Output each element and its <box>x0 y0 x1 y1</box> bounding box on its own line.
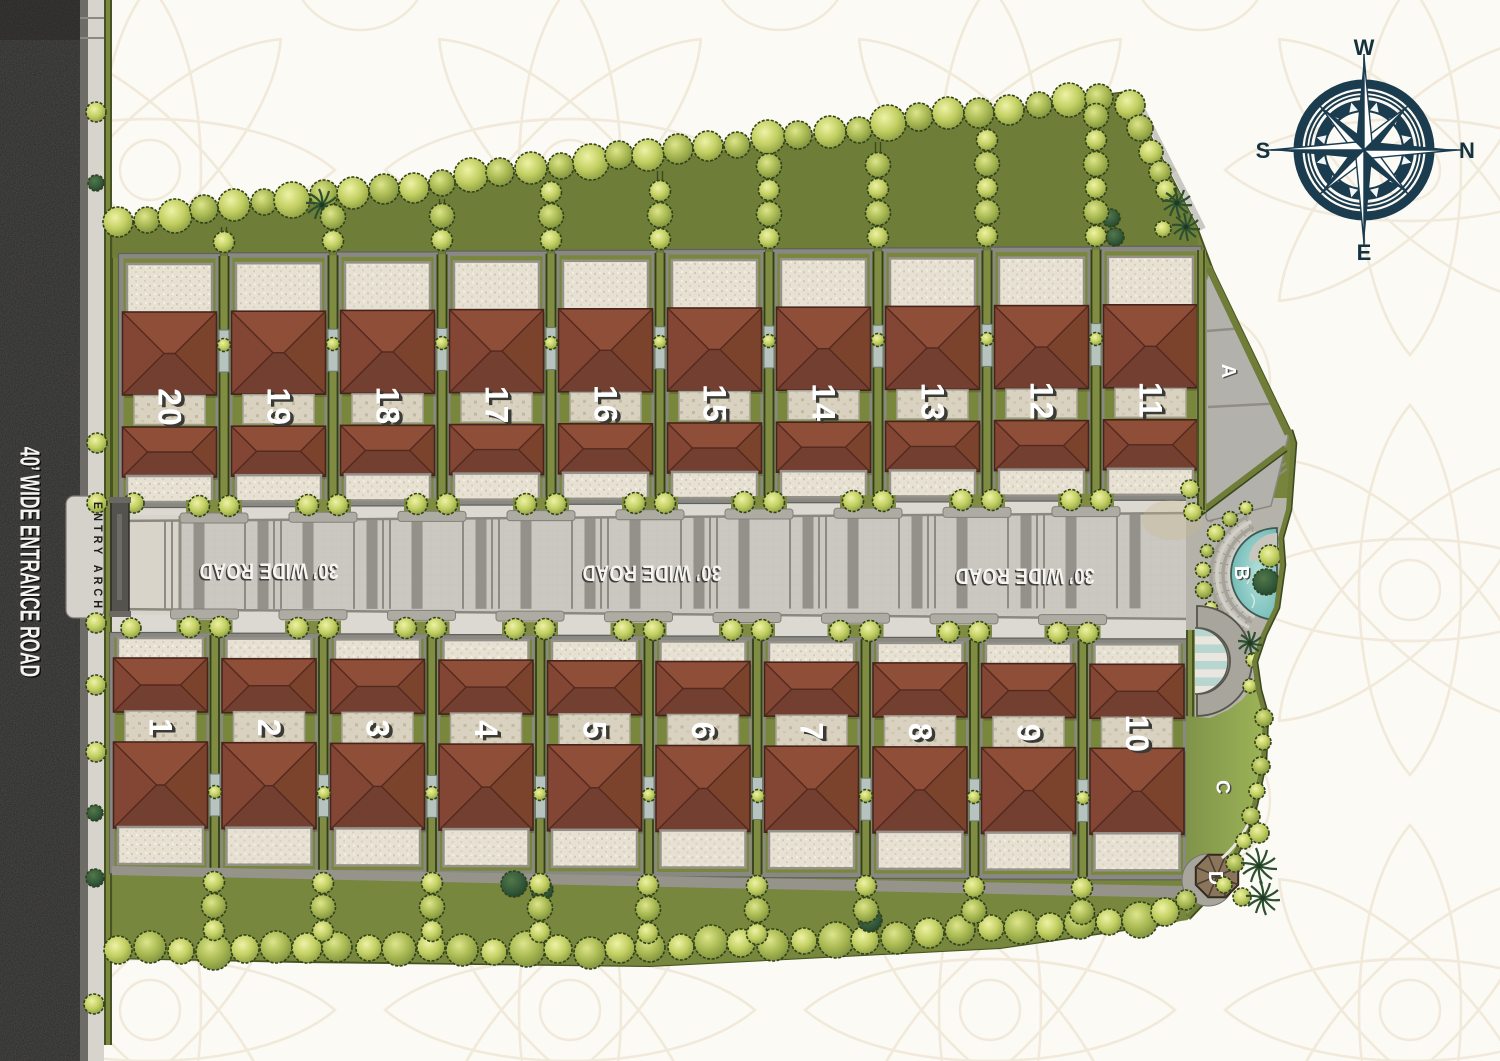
svg-text:4: 4 <box>468 720 504 740</box>
svg-text:2: 2 <box>251 719 287 739</box>
svg-text:30’ WIDE ROAD: 30’ WIDE ROAD <box>955 563 1095 587</box>
svg-text:12: 12 <box>1024 382 1060 422</box>
svg-text:W: W <box>1354 35 1375 60</box>
svg-text:16: 16 <box>588 385 624 425</box>
svg-text:S: S <box>1256 138 1271 163</box>
svg-text:3: 3 <box>360 720 396 740</box>
svg-text:8: 8 <box>902 723 938 743</box>
svg-text:N: N <box>1459 138 1475 163</box>
svg-text:11: 11 <box>1133 382 1169 420</box>
svg-text:C: C <box>1212 780 1233 794</box>
svg-text:13: 13 <box>915 383 951 423</box>
svg-text:19: 19 <box>261 387 297 427</box>
svg-text:6: 6 <box>685 722 721 742</box>
svg-text:A: A <box>1217 364 1239 378</box>
svg-text:E: E <box>1357 240 1372 265</box>
svg-text:1: 1 <box>143 718 179 738</box>
svg-text:18: 18 <box>370 387 406 427</box>
svg-text:14: 14 <box>806 383 842 423</box>
svg-text:40’ WIDE ENTRANCE ROAD: 40’ WIDE ENTRANCE ROAD <box>14 447 45 677</box>
svg-text:30’ WIDE ROAD: 30’ WIDE ROAD <box>582 560 722 584</box>
svg-text:15: 15 <box>697 384 733 424</box>
svg-text:20: 20 <box>152 388 188 428</box>
svg-text:ENTRY ARCH: ENTRY ARCH <box>91 502 104 612</box>
svg-text:9: 9 <box>1011 724 1047 744</box>
svg-text:7: 7 <box>794 722 830 742</box>
svg-text:30’ WIDE ROAD: 30’ WIDE ROAD <box>199 558 339 582</box>
svg-text:5: 5 <box>577 721 613 741</box>
svg-text:10: 10 <box>1119 715 1155 755</box>
svg-text:17: 17 <box>479 386 515 426</box>
svg-text:B: B <box>1230 566 1252 580</box>
